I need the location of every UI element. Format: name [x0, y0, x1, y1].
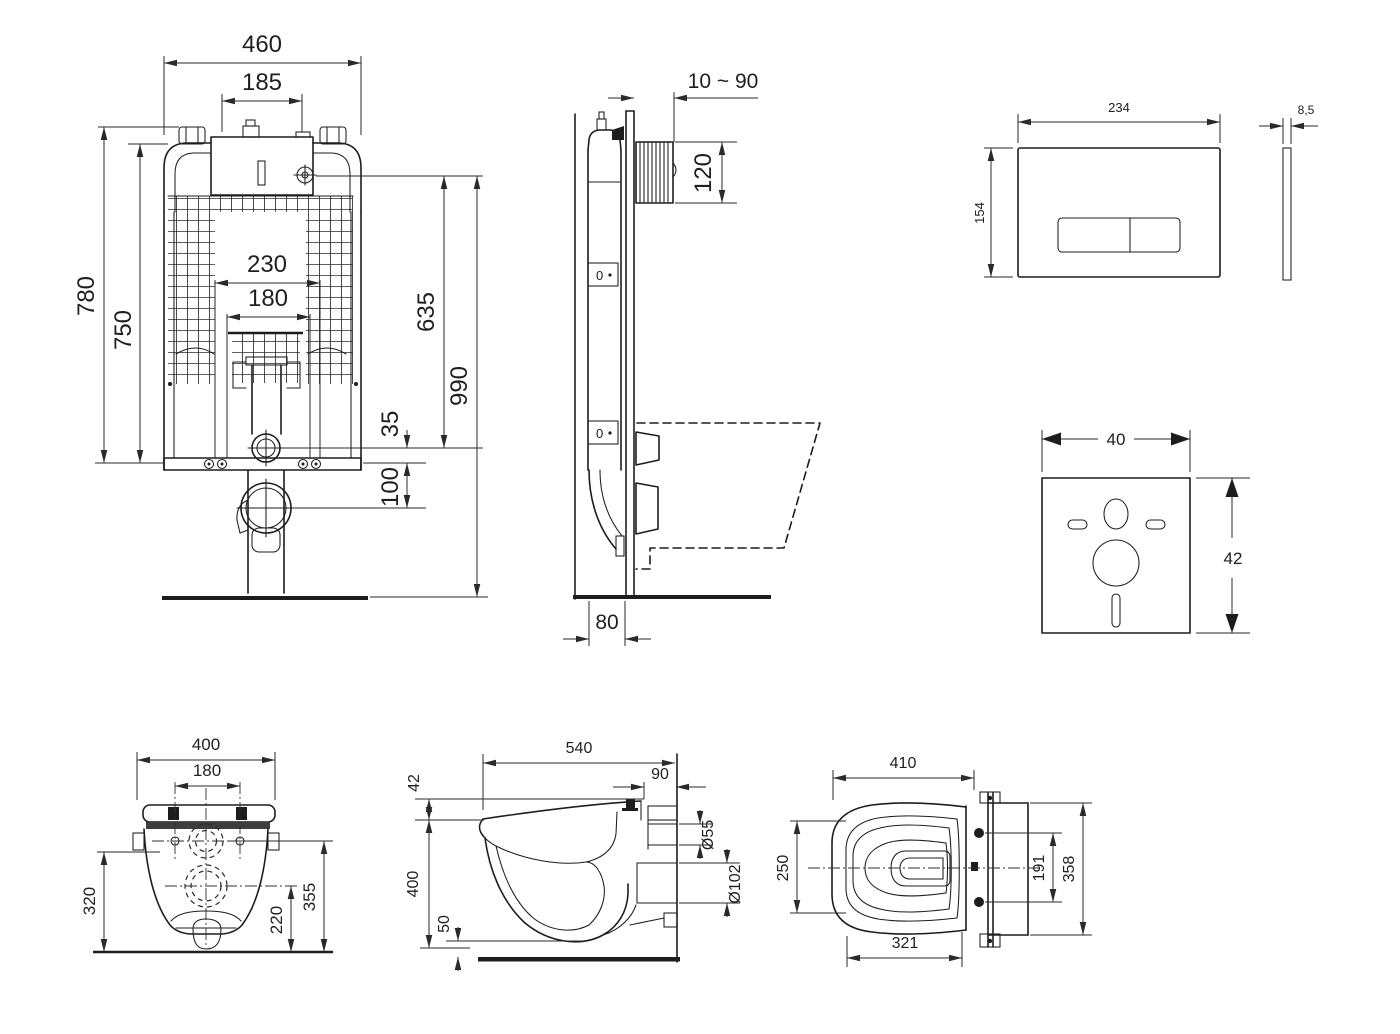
dim-outlet-offset: 100 [377, 467, 404, 507]
flush-plate-body [1018, 148, 1220, 277]
floor-line [573, 595, 771, 599]
dim-access-depth: 120 [690, 153, 717, 193]
left-lug [133, 833, 144, 850]
dim-frame-height: 780 [73, 276, 100, 316]
dim-mat-width: 40 [1107, 430, 1126, 449]
protection-box [636, 142, 676, 203]
dim-plate-height: 154 [972, 202, 987, 224]
flush-rod-slot [258, 161, 265, 185]
floor-line-bowl [478, 957, 680, 962]
dim-seat-depth: 321 [892, 935, 919, 952]
cistern-side-body: 0 0 [588, 112, 624, 556]
seat-outline [832, 803, 966, 934]
floor-plate [162, 596, 368, 600]
dim-plate-width: 234 [1108, 100, 1130, 115]
mounting-rail [626, 111, 634, 598]
dim-top-width: 410 [890, 755, 917, 772]
outlet-elbow [162, 470, 368, 600]
flush-plate-thickness-dimension: 8,5 [1259, 103, 1318, 144]
level-indicator-lower: 0 [596, 426, 603, 441]
flush-plate-view: 234 154 8,5 [972, 100, 1318, 280]
dim-outlet-diameter: Ø102 [727, 864, 744, 903]
mesh-right-column [306, 212, 353, 384]
dim-height-right: 355 [300, 883, 319, 911]
dim-drain-offset: 35 [377, 411, 404, 438]
cistern-front-view: 460 185 780 750 230 180 635 990 35 100 [73, 31, 488, 600]
seat-hinge-band [146, 822, 270, 829]
dim-hole-spacing: 180 [193, 761, 221, 780]
drawing-sheet: 460 185 780 750 230 180 635 990 35 100 [0, 0, 1400, 1034]
flush-buttons [1058, 218, 1180, 252]
mesh-center-patch [232, 333, 300, 383]
upper-bracket [636, 432, 659, 465]
dim-bowl-top-width: 250 [775, 855, 792, 882]
dim-bowl-width: 400 [192, 735, 220, 754]
dim-overall-height: 990 [446, 366, 473, 406]
dim-outlet-height: 220 [267, 906, 286, 934]
seat-bolt-lower [974, 897, 984, 907]
dim-top-depth: 358 [1061, 856, 1078, 883]
bowl-section-profile [479, 799, 677, 942]
seat-lid-bar [143, 805, 275, 822]
dim-mat-height: 42 [1224, 549, 1243, 568]
dim-height-left: 320 [80, 887, 99, 915]
lower-bracket [636, 483, 658, 534]
flush-plate-dimensions: 234 154 [972, 100, 1220, 277]
bowl-rear-view: 400 180 320 355 220 [80, 735, 333, 952]
dim-plate-thickness: 8,5 [1298, 103, 1315, 117]
bowl-top-view: 410 250 191 358 321 [775, 755, 1092, 967]
dim-wall-distance: 10 ~ 90 [688, 70, 759, 93]
seat-bolt-upper [974, 828, 984, 838]
dim-duct-width: 230 [247, 251, 287, 278]
cistern-front-dimensions: 460 185 780 750 230 180 635 990 35 100 [73, 31, 488, 597]
dim-total-width: 460 [242, 31, 282, 58]
sound-mat-view: 40 42 [1042, 430, 1250, 633]
dim-inlet-diameter: Ø55 [700, 820, 717, 850]
dim-top-hole-spacing: 191 [1031, 855, 1048, 882]
dim-rear-depth: 90 [651, 766, 669, 783]
sound-mat-body [1042, 478, 1190, 633]
mesh-left-column [168, 212, 215, 384]
dim-bowl-depth: 540 [566, 740, 593, 757]
bowl-dashed-outline [636, 423, 820, 569]
flush-plate-profile [1283, 148, 1291, 280]
bowl-top-dimensions: 410 250 191 358 321 [775, 755, 1092, 967]
dim-duct-inner: 180 [248, 285, 288, 312]
technical-drawing-canvas: 460 185 780 750 230 180 635 990 35 100 [0, 0, 1400, 1034]
dim-rim-thickness: 42 [406, 774, 423, 792]
dim-top-opening: 185 [242, 69, 282, 96]
mesh-band [168, 196, 353, 212]
dim-frame-depth: 80 [595, 611, 618, 634]
cistern-side-view: 0 0 10 ~ 90 120 80 [563, 70, 820, 646]
dim-clearance: 50 [436, 915, 453, 933]
dim-bowl-height: 400 [405, 871, 422, 898]
dim-valve-height: 635 [413, 292, 440, 332]
dim-tank-height: 750 [110, 310, 137, 350]
bowl-side-section: 540 90 42 400 50 Ø55 Ø102 [405, 740, 744, 971]
sound-mat-dimensions: 40 42 [1042, 430, 1250, 633]
bowl-side-dimensions: 540 90 42 400 50 Ø55 Ø102 [405, 740, 744, 971]
cistern-side-dimensions: 10 ~ 90 120 80 [563, 70, 758, 646]
tank-top-view [971, 792, 1028, 947]
level-indicator-upper: 0 [596, 268, 603, 283]
